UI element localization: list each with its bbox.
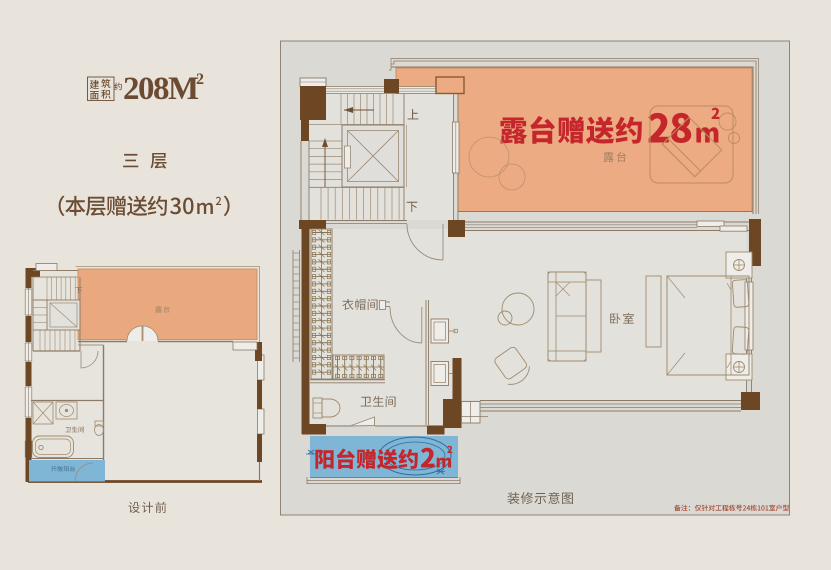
svg-text:208M: 208M <box>123 71 199 107</box>
svg-text:2: 2 <box>196 71 204 88</box>
